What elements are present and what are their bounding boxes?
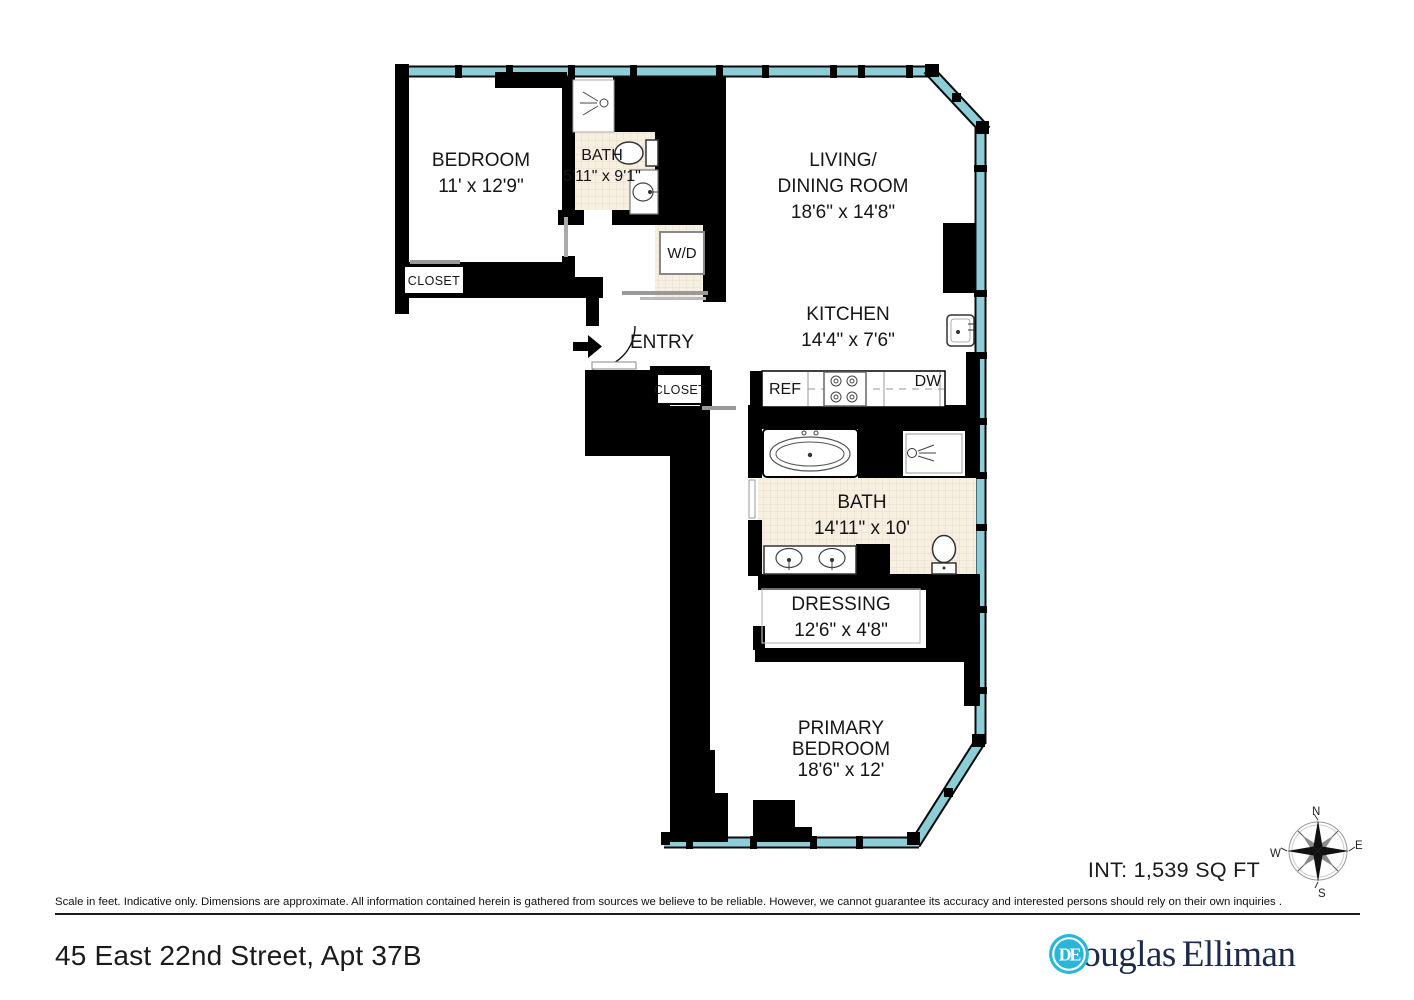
room-label-kitchen: KITCHEN 14'4" x 7'6" [801, 302, 895, 354]
room-label-bedroom: BEDROOM 11' x 12'9" [432, 148, 530, 200]
floorplan-drawing: N E S W [0, 0, 1414, 1000]
floorplan-page: N E S W BEDROOM 11' x 12'9" BATH 5'11" x… [0, 0, 1414, 1000]
douglas-elliman-logo: DE DouglasElliman [1048, 933, 1295, 976]
laundry-sliding-door [622, 291, 708, 295]
room-label-bath-primary: BATH 14'11" x 10' [814, 490, 910, 542]
stove-icon [824, 372, 866, 406]
interior-area-label: INT: 1,539 SQ FT [1000, 858, 1260, 883]
room-label-living-dining: LIVING/ DINING ROOM 18'6" x 14'8" [778, 148, 909, 226]
de-monogram-letters: DE [1059, 944, 1081, 964]
entry-label: ENTRY [630, 330, 694, 356]
entry-arrow-icon [573, 335, 602, 358]
kitchen-sink-icon [947, 315, 974, 346]
bath-pocket-door [749, 480, 755, 518]
dishwasher-label: DW [915, 373, 942, 390]
shower-icon [902, 430, 966, 477]
bedroom-door-leaf [564, 217, 568, 257]
hall-closet-door [702, 406, 736, 410]
bedroom-closet-door [410, 260, 460, 264]
address-title: 45 East 22nd Street, Apt 37B [55, 940, 422, 972]
bathtub-icon [763, 429, 858, 477]
room-label-bath-small: BATH 5'11" x 9'1" [563, 145, 641, 187]
compass-rose: N E S W [1270, 806, 1363, 900]
compass-west-label: W [1270, 848, 1281, 860]
closet-label-bedroom: CLOSET [408, 274, 460, 288]
compass-north-label: N [1312, 806, 1320, 818]
brand-wordmark: DouglasElliman [1056, 933, 1295, 976]
entry-door-leaf [592, 362, 636, 369]
shower-stall-icon [573, 80, 614, 132]
de-monogram-icon: DE [1048, 933, 1090, 975]
footer-divider [55, 913, 1360, 915]
room-label-dressing: DRESSING 12'6" x 4'8" [791, 592, 890, 644]
washer-dryer-label: W/D [667, 246, 696, 262]
room-label-primary-bedroom: PRIMARY BEDROOM 18'6" x 12' [792, 718, 890, 781]
disclaimer-text: Scale in feet. Indicative only. Dimensio… [55, 896, 1365, 908]
compass-east-label: E [1355, 840, 1363, 852]
refrigerator-label: REF [769, 381, 801, 398]
toilet-icon [932, 536, 956, 575]
closet-label-hall: CLOSET [654, 383, 706, 397]
double-vanity-icon [764, 546, 856, 574]
